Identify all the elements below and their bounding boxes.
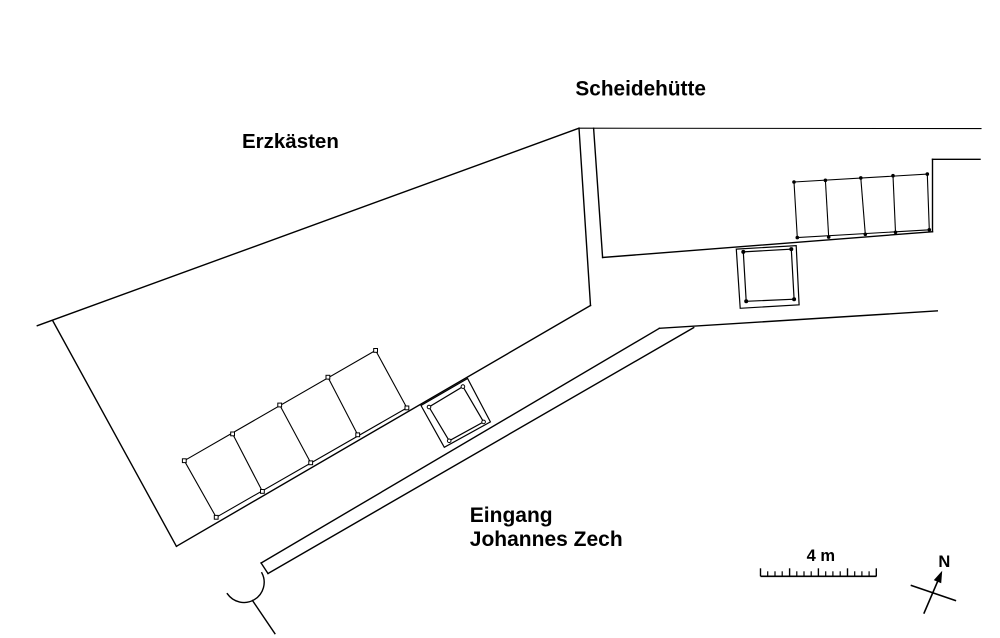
svg-text:4 m: 4 m — [807, 547, 835, 565]
svg-text:N: N — [938, 553, 950, 571]
svg-text:Scheidehütte: Scheidehütte — [575, 77, 706, 100]
svg-text:Erzkästen: Erzkästen — [242, 130, 339, 153]
svg-text:Eingang: Eingang — [470, 504, 553, 527]
svg-text:Johannes Zech: Johannes Zech — [470, 528, 623, 551]
